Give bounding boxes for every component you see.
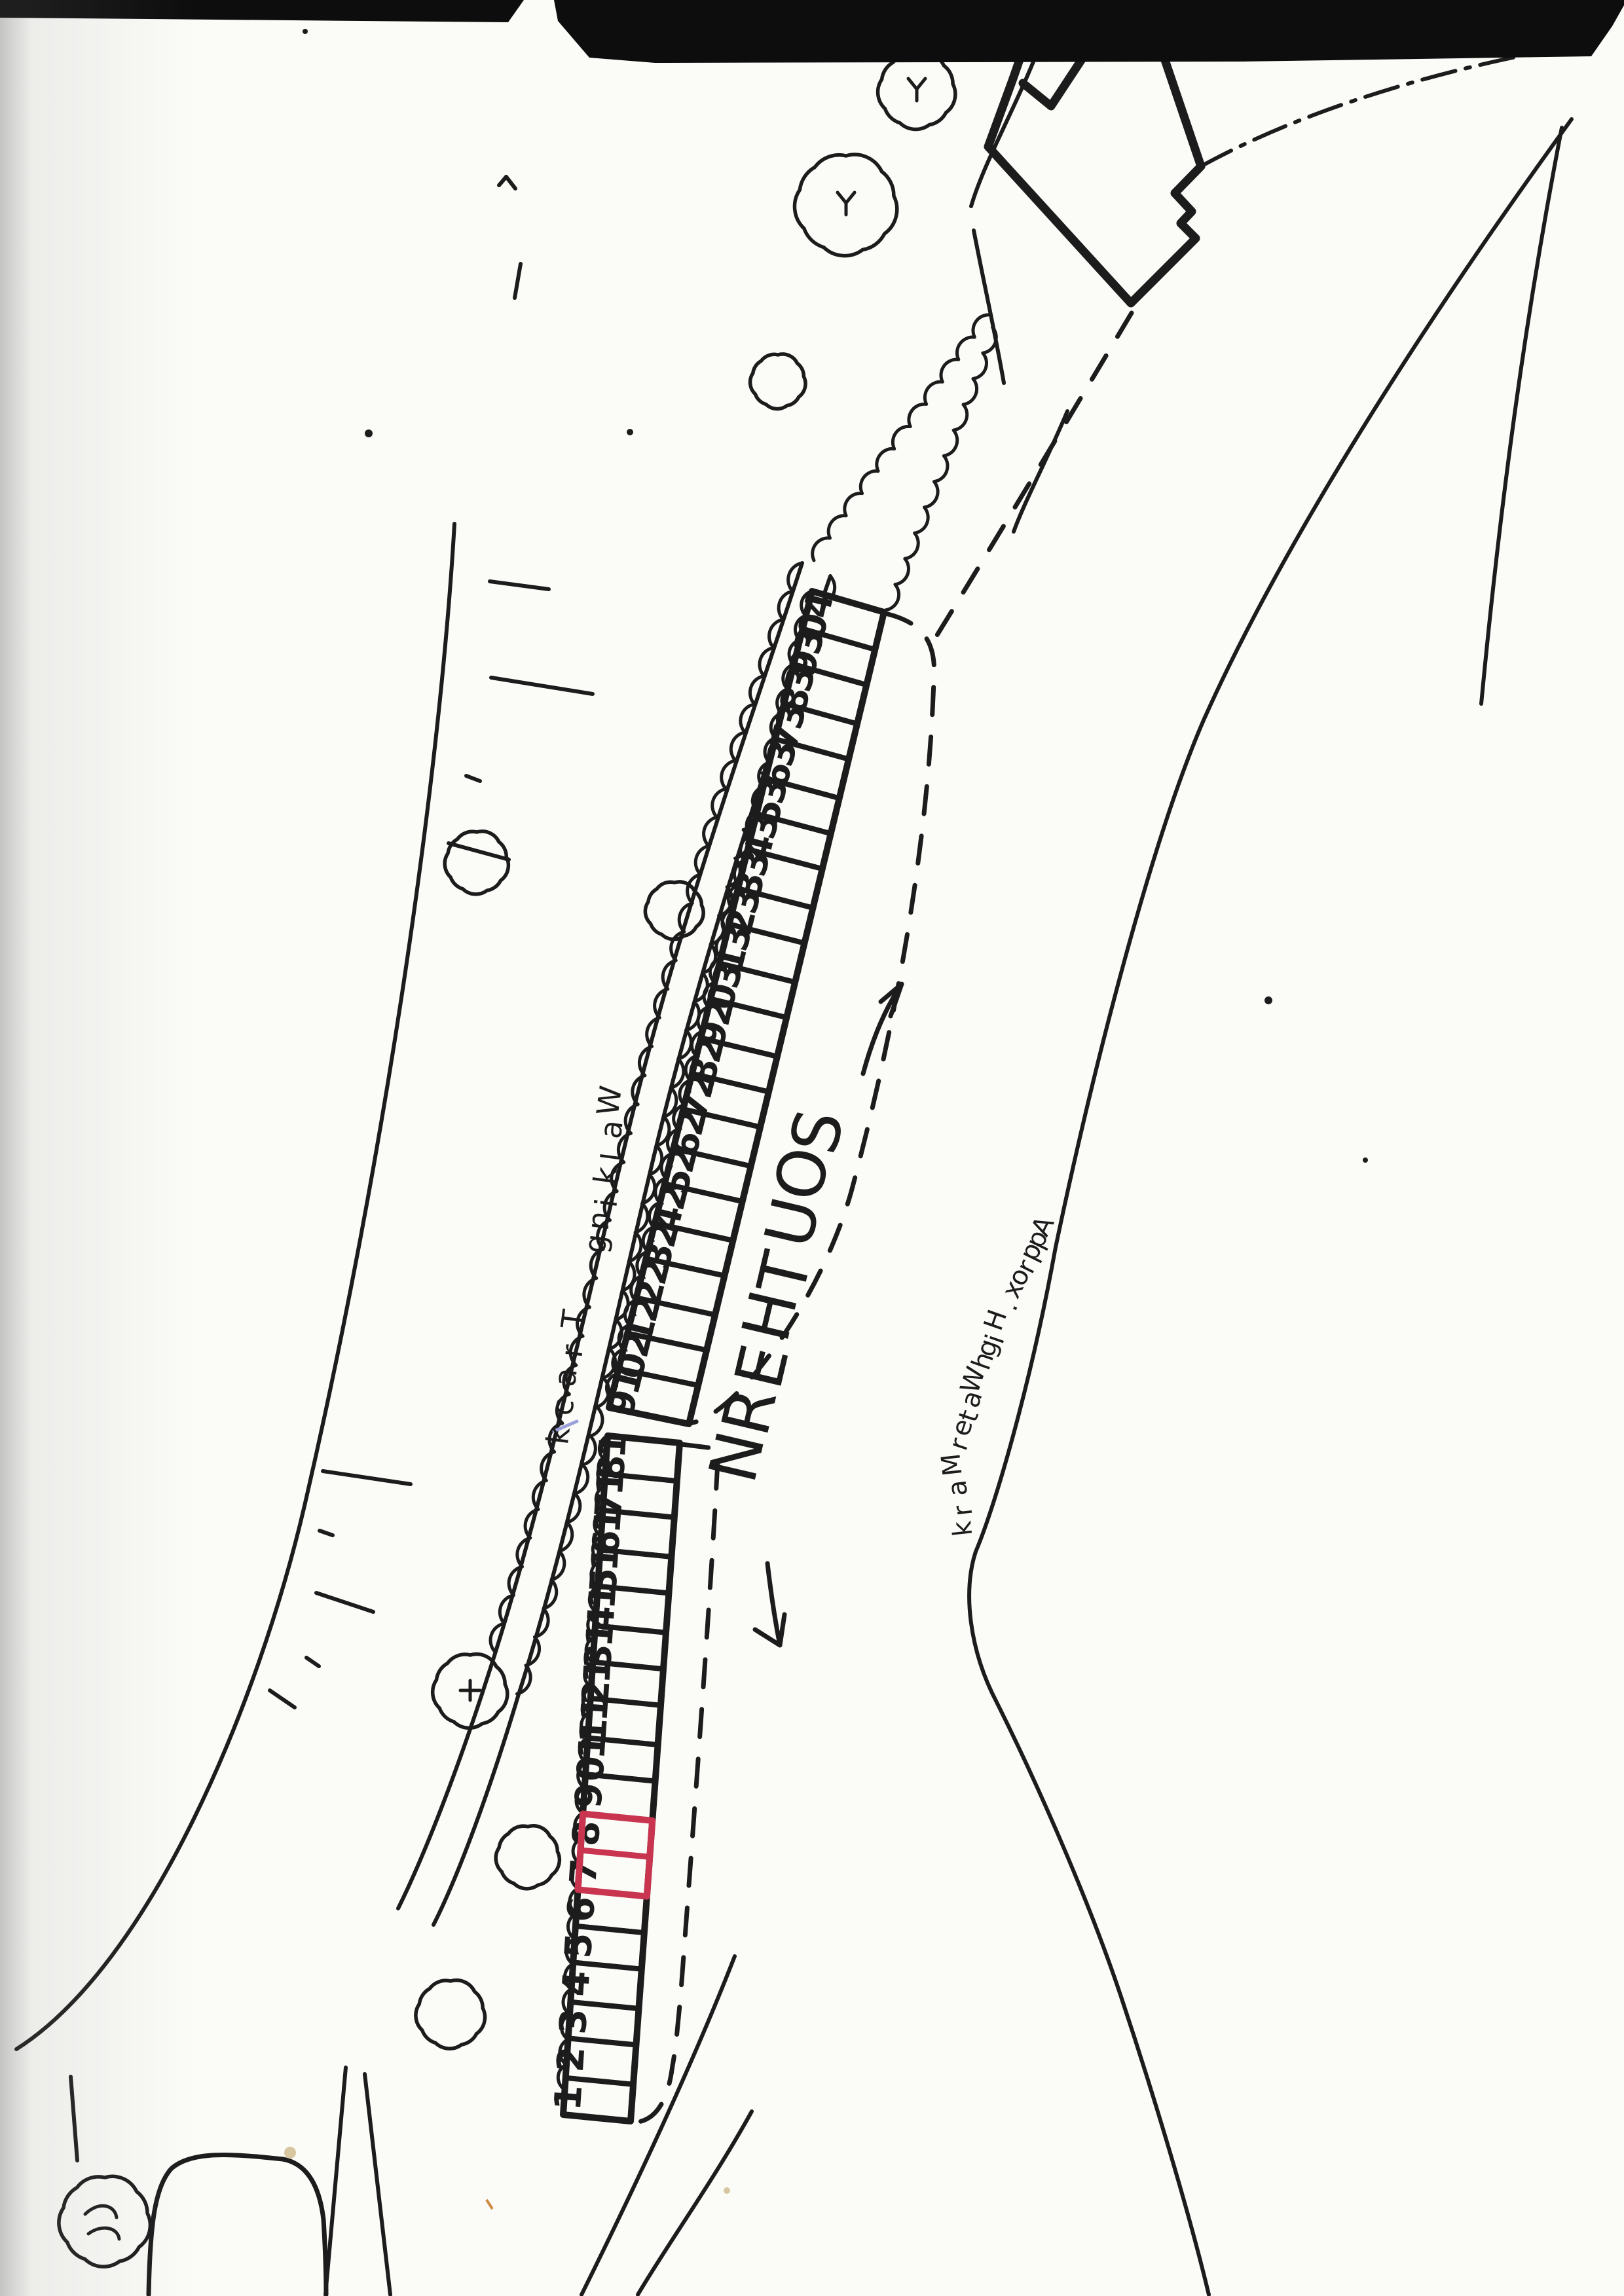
- tree-icon: [496, 1826, 559, 1889]
- boundary-dashed-line: [935, 313, 1132, 638]
- plot-number-6: 6: [560, 1895, 604, 1923]
- scan-top-band: [554, 0, 1624, 63]
- scan-artifacts: [0, 0, 1624, 2209]
- sketch-dash: [490, 581, 549, 589]
- tree-icon: [59, 2176, 150, 2267]
- scan-speck: [627, 429, 633, 435]
- road-line: [1014, 411, 1067, 532]
- plot-number-4: 4: [555, 1969, 599, 1997]
- plot-number-2: 2: [549, 2045, 593, 2073]
- sketch-dash: [323, 1471, 411, 1484]
- plot-number-5: 5: [557, 1931, 601, 1959]
- scan-speck: [365, 429, 373, 437]
- sketch-dash: [449, 843, 509, 860]
- tree-mark: [838, 192, 855, 215]
- direction-arrow-down: [755, 1563, 784, 1645]
- plot-number-7: 7: [562, 1857, 606, 1886]
- scan-speck: [724, 2187, 730, 2194]
- plot-number-8: 8: [564, 1819, 608, 1848]
- scan-top-band: [0, 0, 524, 22]
- plot-number-9: 9: [567, 1781, 611, 1810]
- sketch-dash: [515, 264, 521, 298]
- tree-icon: [416, 1980, 485, 2049]
- road-line: [365, 2074, 390, 2295]
- scan-speck: [284, 2147, 296, 2159]
- tree-mark: [85, 2206, 119, 2239]
- road-line: [1481, 128, 1562, 704]
- sketch-dash: [270, 1690, 295, 1707]
- sketch-dash: [320, 1531, 333, 1535]
- sketch-dash: [306, 1658, 319, 1666]
- sketch-dash: [491, 678, 593, 694]
- scan-speck: [487, 2200, 492, 2209]
- sketch-dash: [466, 776, 480, 781]
- plot-strip-lower: 181716151413121110987654321: [547, 1431, 680, 2121]
- tree-icon: [445, 831, 508, 894]
- scan-speck: [1363, 1157, 1368, 1163]
- scan-speck: [1264, 996, 1272, 1004]
- road-line: [71, 2077, 77, 2160]
- plot-number-10: 10: [569, 1732, 615, 1783]
- plot-number-3: 3: [552, 2007, 596, 2035]
- tree-icon: [645, 882, 703, 939]
- road-line: [325, 2068, 346, 2295]
- tree-icon: [750, 354, 805, 409]
- road-line: [16, 524, 454, 2049]
- sketch-dash: [506, 177, 515, 189]
- scanned-plot-map-page: 4039383736353433323130292827262524232221…: [0, 0, 1624, 2296]
- tree-mark: [908, 79, 925, 101]
- building-outline: [149, 2155, 326, 2295]
- plot-map-drawing: 4039383736353433323130292827262524232221…: [0, 0, 1624, 2296]
- tree-mark: [460, 1681, 480, 1700]
- shoreline: [969, 119, 1572, 2295]
- sketch-dash: [316, 1593, 373, 1612]
- fence-dash-dot-line: [1201, 43, 1587, 166]
- scan-speck: [303, 29, 308, 34]
- road-line: [974, 230, 1004, 383]
- hedge-scallops: [813, 315, 991, 560]
- plot-number-1: 1: [547, 2083, 591, 2111]
